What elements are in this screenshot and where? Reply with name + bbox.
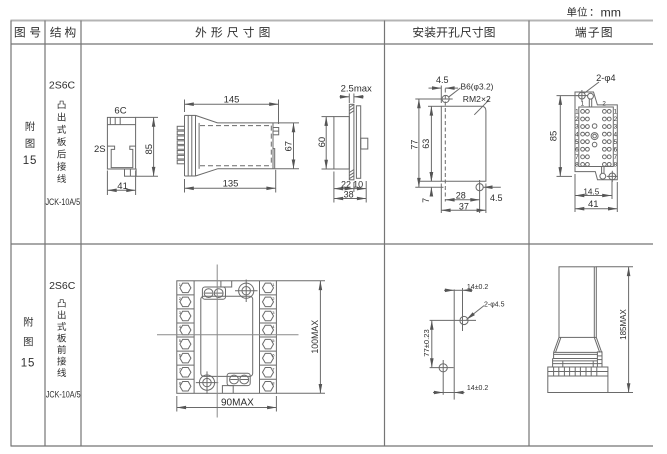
svg-text:2-φ4: 2-φ4	[596, 73, 615, 83]
svg-text:60: 60	[317, 137, 328, 148]
svg-text:2S: 2S	[94, 144, 106, 155]
svg-text:85: 85	[548, 131, 559, 142]
svg-text:JCK-10A/5: JCK-10A/5	[45, 197, 80, 207]
svg-text:38: 38	[344, 190, 354, 200]
svg-text:14±0.2: 14±0.2	[467, 385, 488, 392]
svg-text:10: 10	[353, 180, 363, 190]
svg-text:63: 63	[421, 139, 431, 149]
svg-text:3: 3	[272, 310, 275, 315]
svg-text:15: 15	[23, 155, 37, 167]
svg-text:7: 7	[272, 366, 275, 371]
svg-text:145: 145	[224, 95, 240, 106]
svg-text:4.5: 4.5	[490, 193, 503, 203]
svg-text:28: 28	[456, 191, 466, 201]
svg-text:14.5: 14.5	[583, 187, 599, 196]
svg-text:JCK-10A/5: JCK-10A/5	[46, 390, 81, 400]
svg-text:100MAX: 100MAX	[310, 320, 320, 354]
svg-text:77±0.23: 77±0.23	[422, 329, 431, 356]
svg-text:7: 7	[421, 198, 431, 203]
svg-text:135: 135	[223, 179, 239, 190]
svg-text:90MAX: 90MAX	[221, 397, 254, 408]
svg-text:6C: 6C	[114, 106, 126, 117]
svg-text:41: 41	[588, 199, 599, 210]
svg-text:37: 37	[459, 201, 469, 211]
svg-text:67: 67	[283, 141, 294, 152]
svg-text:77: 77	[409, 140, 419, 150]
svg-text:5: 5	[272, 338, 275, 343]
svg-text:85: 85	[144, 144, 155, 155]
svg-text:185MAX: 185MAX	[619, 308, 628, 339]
svg-text:22: 22	[341, 180, 351, 190]
svg-text:1: 1	[272, 282, 275, 287]
svg-text:1: 1	[581, 100, 585, 107]
svg-text:RM2×2: RM2×2	[463, 94, 491, 104]
svg-text:15: 15	[21, 357, 35, 369]
svg-text:2-φ4.5: 2-φ4.5	[484, 301, 505, 308]
svg-text:4: 4	[272, 324, 275, 329]
svg-text:41: 41	[117, 181, 128, 192]
svg-text:4.5: 4.5	[436, 75, 449, 85]
svg-text:mm: mm	[601, 6, 622, 20]
svg-text:2: 2	[272, 296, 275, 301]
svg-text:2.5max: 2.5max	[341, 84, 372, 95]
svg-text:2S6C: 2S6C	[49, 80, 76, 92]
svg-text:2S6C: 2S6C	[49, 280, 76, 292]
svg-text:8: 8	[272, 380, 275, 385]
svg-text:2: 2	[602, 101, 606, 108]
svg-text:6: 6	[272, 352, 275, 357]
svg-text:B6(φ3.2): B6(φ3.2)	[461, 82, 494, 92]
